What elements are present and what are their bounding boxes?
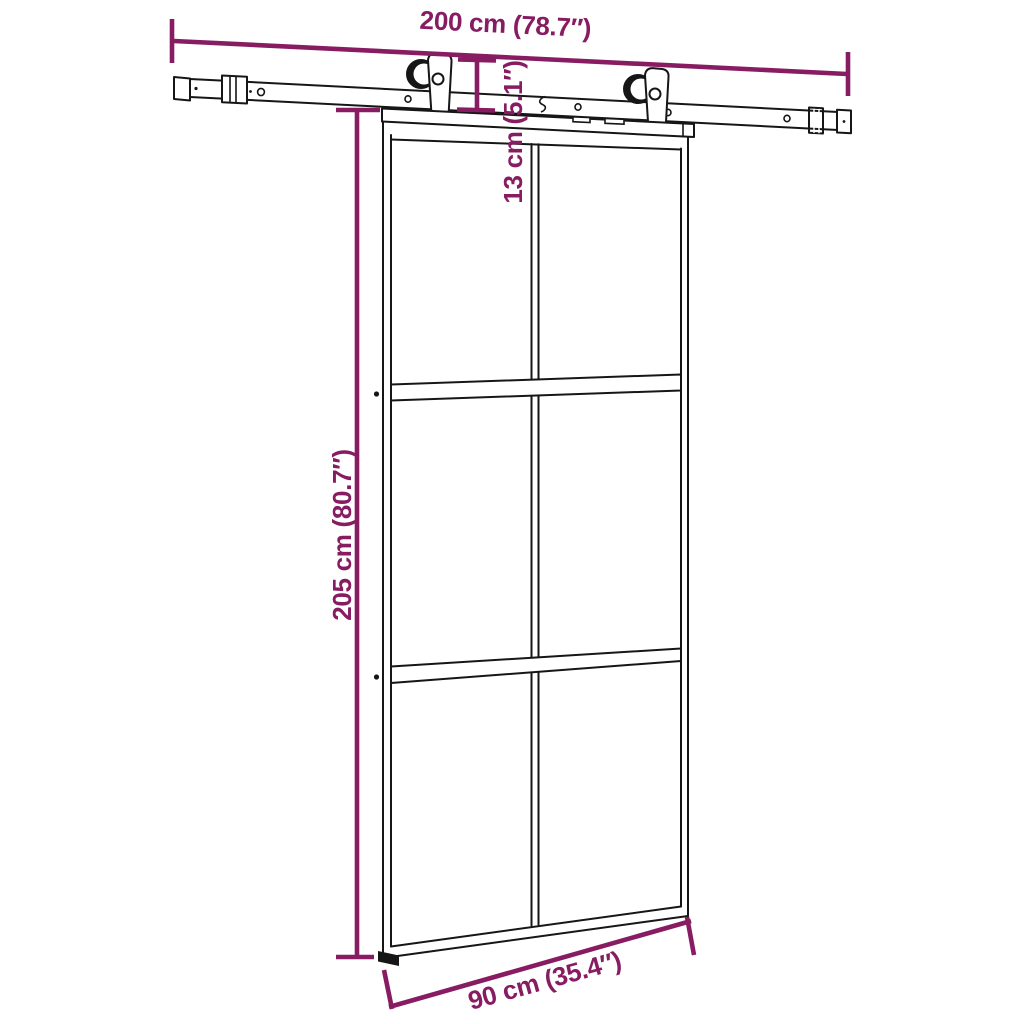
horizontal-mullion-2 bbox=[391, 649, 681, 684]
door-width-tick-left bbox=[384, 970, 392, 1009]
dimension-hanger-drop: 13 cm (5.1″) bbox=[457, 60, 528, 204]
track-width-label: 200 cm (78.7″) bbox=[419, 5, 592, 43]
dimension-door-height: 205 cm (80.7″) bbox=[327, 110, 380, 957]
rail-end-cap-left bbox=[174, 77, 190, 101]
frame-bottom-inner bbox=[391, 907, 681, 947]
plate-spacer-2 bbox=[605, 118, 624, 124]
rail-bracket-left bbox=[222, 76, 247, 104]
sliding-door bbox=[374, 109, 694, 967]
plate-spacer-1 bbox=[573, 117, 590, 123]
hanger-drop-cap-top bbox=[458, 60, 496, 61]
hanger-bolt-icon bbox=[433, 74, 444, 85]
door-width-label: 90 cm (35.4″) bbox=[465, 945, 625, 1016]
dimension-door-width: 90 cm (35.4″) bbox=[384, 917, 694, 1016]
frame-top-inner bbox=[391, 140, 681, 150]
hanger-drop-cap-bottom bbox=[457, 110, 495, 111]
frame-screw-dots bbox=[374, 391, 379, 679]
diagram-canvas: 200 cm (78.7″) 13 cm (5.1″) 205 cm (80.7… bbox=[0, 0, 1024, 1024]
door-height-label: 205 cm (80.7″) bbox=[327, 449, 357, 621]
horizontal-mullion-1 bbox=[391, 375, 681, 401]
product-dimension-diagram: 200 cm (78.7″) 13 cm (5.1″) 205 cm (80.7… bbox=[0, 0, 1024, 1024]
door-frame bbox=[383, 122, 688, 959]
center-mullion bbox=[532, 144, 539, 926]
hanger-drop-label: 13 cm (5.1″) bbox=[498, 60, 528, 203]
floor-guide bbox=[378, 951, 399, 966]
